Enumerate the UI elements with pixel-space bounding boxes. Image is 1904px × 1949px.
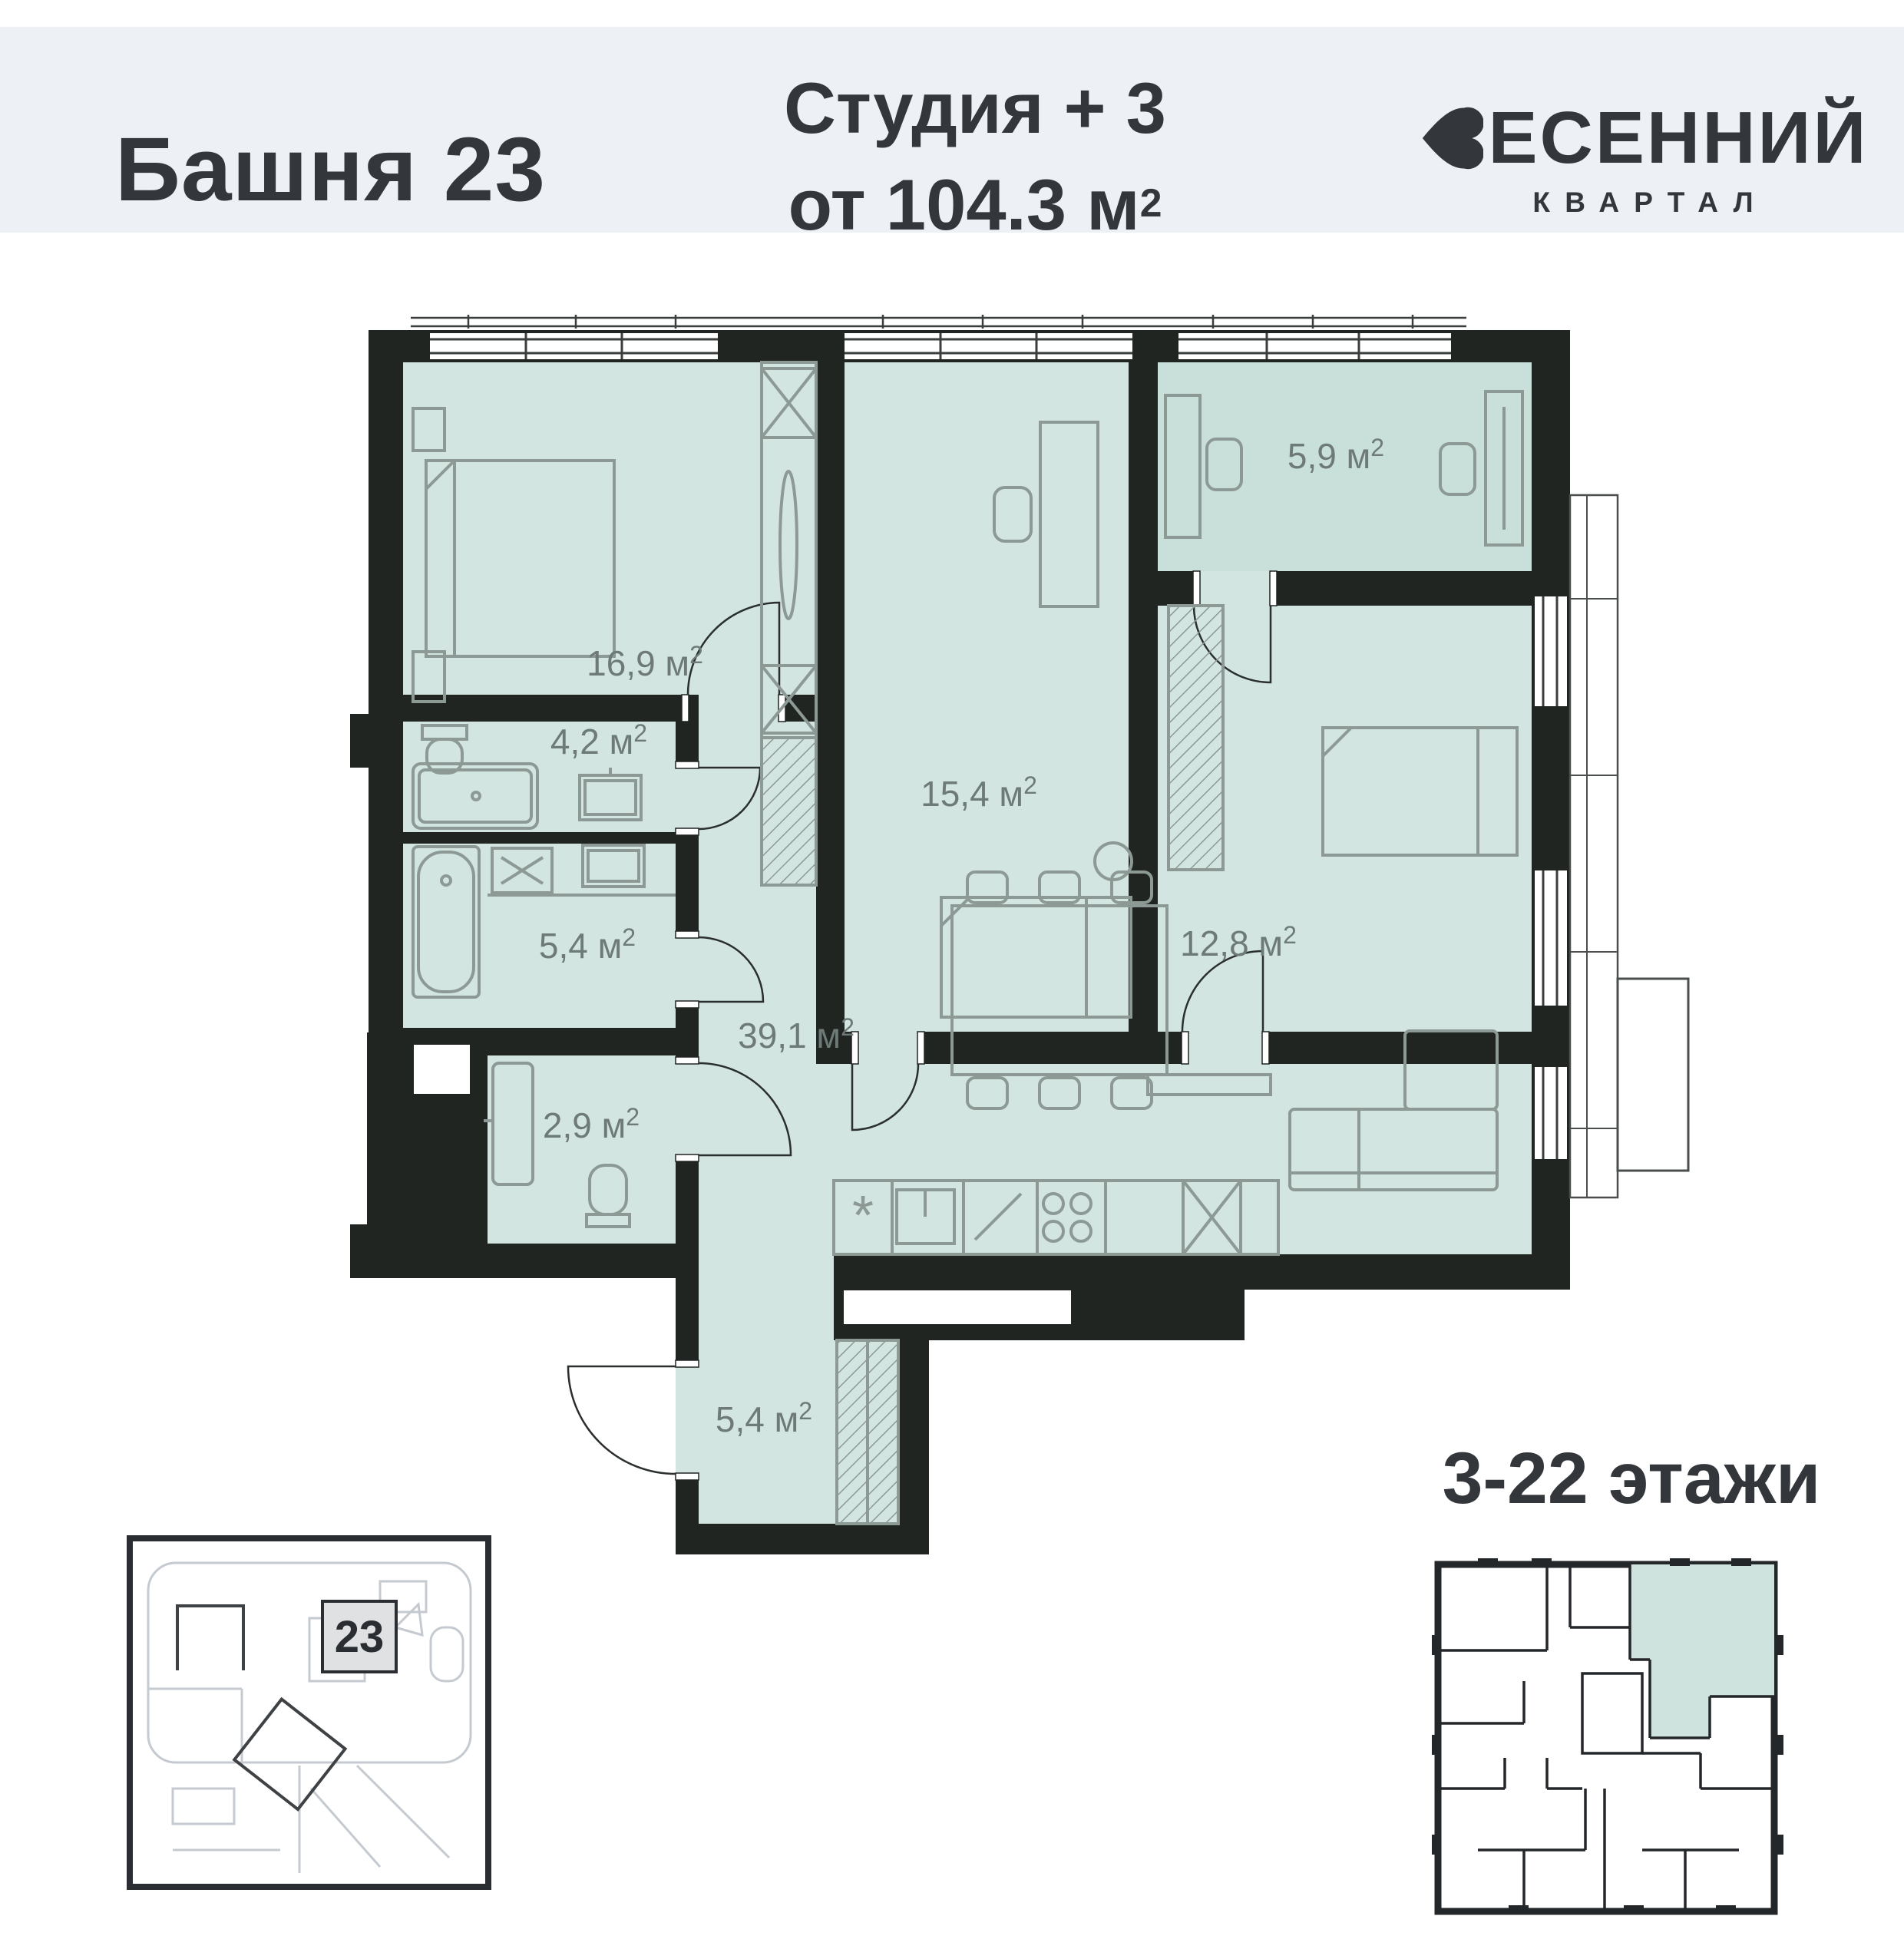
unit-area-label: от 104.3 м2 (691, 164, 1259, 246)
facade-lines (411, 315, 1466, 329)
balcony-box (1618, 979, 1688, 1171)
brand-name: ЕСЕННИЙ (1488, 96, 1868, 180)
brand-logo: ЕСЕННИЙ КВАРТАЛ (1405, 65, 1881, 234)
balcony (1570, 495, 1688, 1197)
page-title: Башня 23 (115, 117, 546, 222)
room-area-label-bath2: 5,4 м2 (539, 923, 636, 966)
utility-shaft (414, 1045, 470, 1094)
room-area-label-bedroom1: 16,9 м2 (587, 641, 703, 683)
mini-floor-plan (1432, 1558, 1793, 1927)
room-area-label-cabinet: 5,9 м2 (1288, 434, 1384, 476)
site-map-building-badge: 23 (322, 1601, 396, 1672)
unit-area-sup: 2 (1140, 180, 1162, 225)
unit-type-label: Студия + 3 (691, 67, 1259, 150)
unit-summary: Студия + 3 от 104.3 м2 (691, 27, 1259, 233)
brand-subtitle: КВАРТАЛ (1405, 187, 1881, 219)
room-area-label-living: 39,1 м2 (738, 1013, 854, 1055)
header: Башня 23 Студия + 3 от 104.3 м2 ЕСЕННИЙ … (0, 27, 1904, 233)
room-area-label-hall: 5,4 м2 (716, 1397, 812, 1439)
room-hall-furniture (837, 1340, 898, 1524)
fridge-icon: * (852, 1185, 874, 1247)
windows-top (430, 333, 1451, 359)
floor-plan: * 16,9 м2 4,2 м2 15,4 м2 5,9 м2 12,8 м2 … (345, 315, 1697, 1566)
page: Башня 23 Студия + 3 от 104.3 м2 ЕСЕННИЙ … (0, 0, 1904, 1949)
wall-niche (844, 1290, 1071, 1324)
room-area-label-bedroom3: 12,8 м2 (1180, 921, 1297, 963)
building-number: 23 (335, 1612, 385, 1662)
room-area-label-bedroom2: 15,4 м2 (921, 771, 1037, 814)
site-map: 23 (127, 1535, 491, 1890)
unit-area-text: от 104.3 м (788, 164, 1140, 245)
heart-icon (1417, 105, 1483, 171)
room-area-label-bath1: 4,2 м2 (550, 719, 647, 761)
floors-heading: 3-22 этажи (1359, 1437, 1904, 1521)
windows-right (1535, 596, 1567, 1159)
room-area-label-wc: 2,9 м2 (543, 1103, 640, 1145)
